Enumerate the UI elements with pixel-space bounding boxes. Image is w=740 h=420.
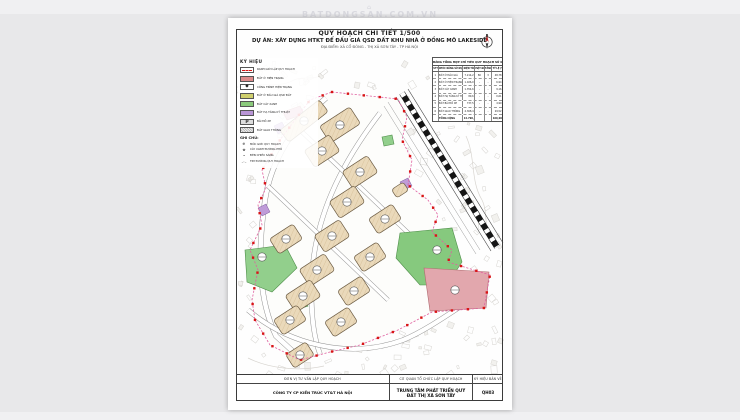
table-cell: 1.026,0 — [463, 79, 475, 85]
legend-note: ❀CÂY XANH ĐƯỜNG PHỐ — [240, 148, 316, 152]
table-cell: ĐẤT HẠ TẦNG KỸ THUẬT — [439, 94, 464, 100]
title-block-bottom: ĐƠN VỊ TƯ VẤN LẬP QUY HOẠCH CÔNG TY CP K… — [236, 374, 503, 401]
agency-header: CƠ QUAN TỔ CHỨC LẬP QUY HOẠCH — [390, 375, 472, 384]
legend-label: ĐẤT Ở HIỆN TRẠNG — [257, 77, 284, 80]
legend-swatch-solid-icon — [240, 101, 254, 107]
legend-label: ĐẤT CÂY XANH — [257, 103, 277, 106]
project-name: DỰ ÁN: XÂY DỰNG HTKT ĐỂ ĐẤU GIÁ QSD ĐẤT … — [236, 38, 503, 45]
legend-label: BÃI ĐỖ XE — [257, 120, 271, 123]
legend-label: CÔNG TRÌNH HIỆN TRẠNG — [257, 86, 292, 89]
table-row: 6ĐẤT GIAO THÔNG4.368,4--29,52 — [433, 108, 502, 115]
north-compass-icon: B — [478, 32, 496, 50]
table-cell: 4,99 — [492, 101, 502, 107]
table-cell: - — [485, 94, 493, 100]
legend-label: ĐẤT Ở ĐẤU GIÁ QSD ĐẤT — [257, 94, 291, 97]
table-cell: - — [475, 94, 485, 100]
table-cell: - — [475, 108, 485, 114]
table-cell: 9,16 — [492, 86, 502, 92]
table-cell: - — [475, 79, 485, 85]
table-title: BẢNG TỔNG HỢP CHỈ TIÊU QUY HOẠCH SỬ DỤNG… — [433, 58, 502, 66]
legend-swatch-parking-icon — [240, 119, 254, 125]
note-label: ĐÈN CHIẾU SÁNG — [250, 154, 274, 157]
legend-item: ĐẤT HẠ TẦNG KỸ THUẬT — [240, 110, 316, 116]
drawing-code-header: KÝ HIỆU BẢN VẼ — [473, 375, 503, 384]
legend-item: CÔNG TRÌNH HIỆN TRẠNG — [240, 84, 316, 90]
legend-item: BÃI ĐỖ XE — [240, 119, 316, 125]
table-cell: - — [485, 108, 493, 114]
table-cell: 0,61 — [492, 94, 502, 100]
svg-text:B: B — [486, 33, 489, 37]
table-row: 1ĐẤT Ở ĐẤU GIÁ7.214,280348,78 — [433, 72, 502, 79]
legend-swatch-solid-icon — [240, 76, 254, 82]
survey-marker-icon: ⊕ — [240, 142, 248, 146]
table-row: 3ĐẤT CÂY XANH1.354,6--9,16 — [433, 86, 502, 93]
legend-swatch-solid-icon — [240, 110, 254, 116]
table-cell — [475, 115, 485, 121]
table-cell: 737,5 — [463, 101, 475, 107]
legend-note: •ĐÈN CHIẾU SÁNG — [240, 154, 316, 158]
consultant-name: CÔNG TY CP KIẾN TRÚC VT&T HÀ NỘI — [236, 384, 389, 401]
table-cell: 14.790,3 — [463, 115, 475, 121]
legend-note: –·–TIM ĐƯỜNG QUY HOẠCH — [240, 160, 316, 164]
legend-swatch-hatch-icon — [240, 127, 254, 133]
table-cell: - — [485, 101, 493, 107]
drawing-code-value: QH03 — [473, 384, 503, 401]
table-col-header: MẬT ĐỘ XD (%) — [475, 66, 485, 71]
street-light-icon: • — [240, 154, 248, 158]
table-cell: - — [485, 79, 493, 85]
legend-swatch-boundary-icon — [240, 67, 254, 73]
note-label: MỐC GIỚI QUY HOẠCH — [250, 143, 281, 146]
table-cell: 1.354,6 — [463, 86, 475, 92]
legend-swatch-symbol-icon — [240, 84, 254, 90]
background-bottom-band — [0, 412, 740, 420]
table-cell: ĐẤT BÃI ĐỖ XE — [439, 101, 464, 107]
table-cell: 3 — [485, 72, 493, 78]
table-cell: 100,00 — [492, 115, 502, 121]
table-col-header: TỶ LỆ (%) — [492, 66, 502, 71]
legend-heading: KÝ HIỆU — [240, 60, 316, 65]
legend-item: ĐẤT Ở HIỆN TRẠNG — [240, 76, 316, 82]
table-cell: ĐẤT Ở HIỆN TRẠNG — [439, 79, 464, 85]
agency-column: CƠ QUAN TỔ CHỨC LẬP QUY HOẠCH TRUNG TÂM … — [390, 375, 473, 401]
table-cell: 89,6 — [463, 94, 475, 100]
table-cell: 29,52 — [492, 108, 502, 114]
agency-name: TRUNG TÂM PHÁT TRIỂN QUỸ ĐẤT THỊ XÃ SƠN … — [390, 384, 472, 401]
table-cell: 6,94 — [492, 79, 502, 85]
legend-item: RANH GIỚI LẬP QUY HOẠCH — [240, 67, 316, 73]
drawing-code-column: KÝ HIỆU BẢN VẼ QH03 — [473, 375, 503, 401]
table-cell: ĐẤT GIAO THÔNG — [439, 108, 464, 114]
table-cell: - — [475, 101, 485, 107]
notes-heading: GHI CHÚ: — [240, 136, 316, 140]
table-row: TỔNG CỘNG14.790,3100,00 — [433, 115, 502, 121]
legend: KÝ HIỆU RANH GIỚI LẬP QUY HOẠCHĐẤT Ở HIỆ… — [238, 58, 318, 168]
table-col-header: DIỆN TÍCH (M2) — [463, 66, 475, 71]
table-row: 2ĐẤT Ở HIỆN TRẠNG1.026,0--6,94 — [433, 79, 502, 86]
table-col-header: TẦNG CAO — [485, 66, 493, 71]
title-block-top: QUY HOẠCH CHI TIẾT 1/500 DỰ ÁN: XÂY DỰNG… — [236, 30, 503, 50]
legend-label: RANH GIỚI LẬP QUY HOẠCH — [257, 68, 295, 71]
table-cell: 7.214,2 — [463, 72, 475, 78]
legend-item: ĐẤT GIAO THÔNG — [240, 127, 316, 133]
table-cell: 4.368,4 — [463, 108, 475, 114]
table-cell: - — [475, 86, 485, 92]
tree-icon: ❀ — [240, 148, 248, 152]
table-cell: 48,78 — [492, 72, 502, 78]
table-cell: ĐẤT CÂY XANH — [439, 86, 464, 92]
table-cell: 80 — [475, 72, 485, 78]
legend-item: ĐẤT Ở ĐẤU GIÁ QSD ĐẤT — [240, 93, 316, 99]
note-label: TIM ĐƯỜNG QUY HOẠCH — [250, 160, 284, 163]
table-cell: - — [485, 86, 493, 92]
drawing-sheet: QUY HOẠCH CHI TIẾT 1/500 DỰ ÁN: XÂY DỰNG… — [228, 18, 512, 410]
table-row: 4ĐẤT HẠ TẦNG KỸ THUẬT89,6--0,61 — [433, 94, 502, 101]
legend-swatch-solid-icon — [240, 93, 254, 99]
legend-note: ⊕MỐC GIỚI QUY HOẠCH — [240, 142, 316, 146]
legend-label: ĐẤT GIAO THÔNG — [257, 129, 281, 132]
table-cell: ĐẤT Ở ĐẤU GIÁ — [439, 72, 464, 78]
project-location: ĐỊA ĐIỂM: XÃ CỔ ĐÔNG - THỊ XÃ SƠN TÂY - … — [236, 45, 503, 50]
consultant-header: ĐƠN VỊ TƯ VẤN LẬP QUY HOẠCH — [236, 375, 389, 384]
landuse-summary-table: BẢNG TỔNG HỢP CHỈ TIÊU QUY HOẠCH SỬ DỤNG… — [432, 57, 503, 122]
table-col-header: CHỨC NĂNG SỬ DỤNG ĐẤT — [439, 66, 464, 71]
consultant-column: ĐƠN VỊ TƯ VẤN LẬP QUY HOẠCH CÔNG TY CP K… — [236, 375, 390, 401]
table-cell — [485, 115, 493, 121]
table-row: 5ĐẤT BÃI ĐỖ XE737,5--4,99 — [433, 101, 502, 108]
note-label: CÂY XANH ĐƯỜNG PHỐ — [250, 148, 282, 151]
road-axis-icon: –·– — [240, 160, 248, 164]
legend-item: ĐẤT CÂY XANH — [240, 101, 316, 107]
table-cell: TỔNG CỘNG — [439, 115, 464, 121]
legend-label: ĐẤT HẠ TẦNG KỸ THUẬT — [257, 111, 290, 114]
drawing-title: QUY HOẠCH CHI TIẾT 1/500 — [236, 30, 503, 38]
